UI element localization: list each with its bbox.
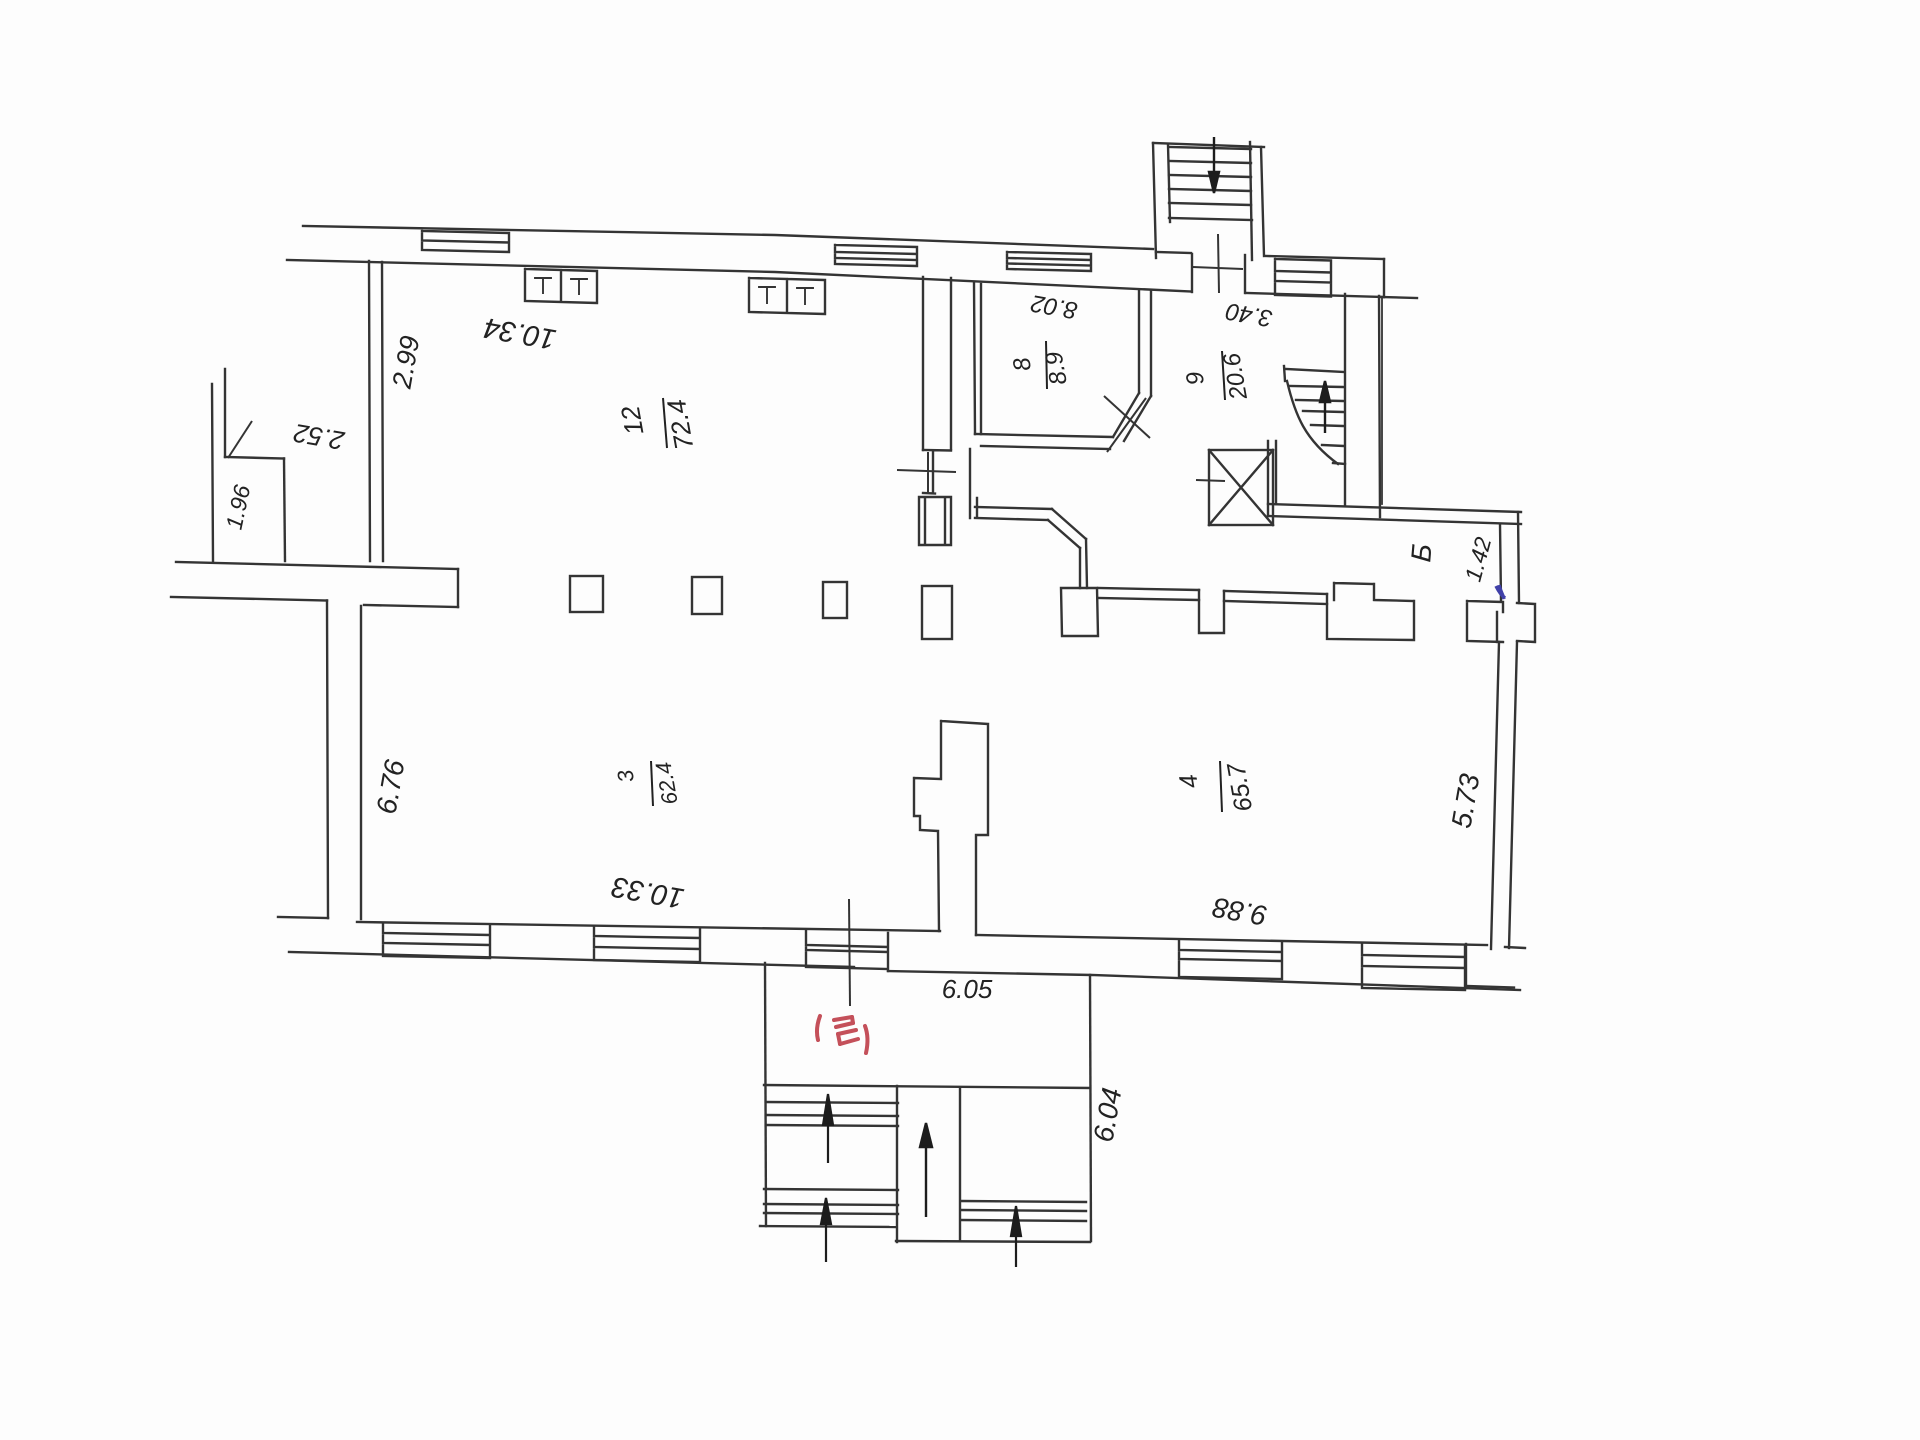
svg-text:6.05: 6.05: [942, 974, 993, 1004]
svg-text:8.9: 8.9: [1040, 350, 1072, 388]
svg-text:Б: Б: [1405, 543, 1437, 564]
svg-text:12: 12: [615, 403, 650, 437]
